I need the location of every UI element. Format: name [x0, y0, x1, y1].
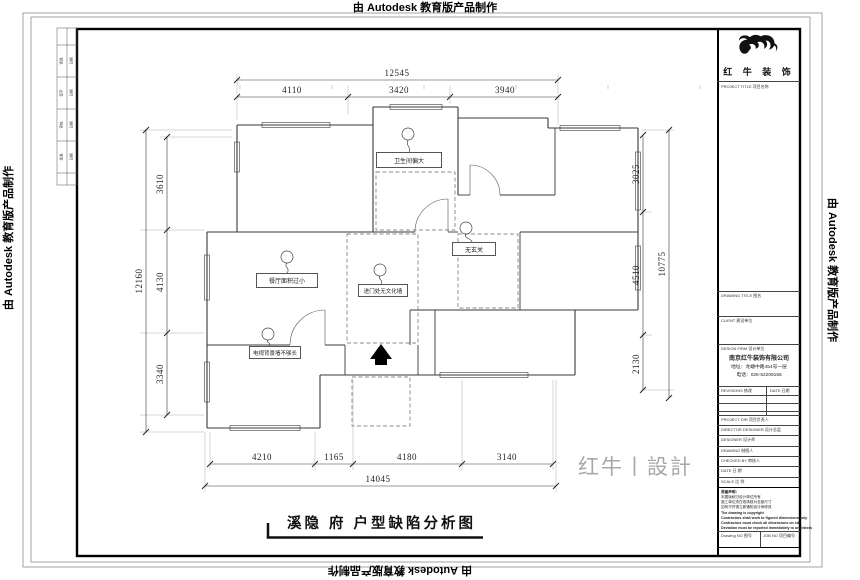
tb-row-project-dir: PROJECT DIR 项目负责人 — [721, 417, 769, 423]
fold-strip-label: 审核 — [60, 122, 65, 129]
company-phone: 电话：025-52209155 — [718, 371, 800, 378]
dim-top-seg: 3940 — [495, 85, 515, 95]
tb-section-project-title: PROJECT TITLE 项目名称 — [721, 84, 769, 90]
sheet-title: 溪隐 府 户型缺陷分析图 — [287, 512, 476, 533]
tb-job-no-label: JOB NO 项目编号 — [763, 533, 795, 539]
tb-note: Deviation must be reported immediately t… — [721, 526, 812, 530]
autodesk-watermark-left: 由 Autodesk 教育版产品制作 — [0, 166, 16, 310]
dim-bottom-seg: 4210 — [252, 452, 272, 462]
tb-note: 如有不符请立即通知设计师修改 — [721, 505, 771, 510]
tb-row-drawing: DRAWING 制图人 — [721, 448, 753, 454]
fold-strip-label: 日期 — [70, 90, 75, 97]
fold-strip-label: 日期 — [70, 58, 75, 65]
tb-divider — [718, 466, 800, 467]
entrance-arrow-icon — [370, 344, 392, 365]
fold-strip-label: 修改 — [60, 58, 65, 65]
defect-label-tv-wall: 电视背景墙不够长 — [249, 346, 301, 359]
tb-divider — [718, 81, 800, 82]
defect-label-entry: 进门处无文化墙 — [358, 284, 408, 297]
tb-divider — [718, 477, 800, 478]
company-name: 南京红牛装饰有限公司 — [718, 353, 800, 362]
dim-bottom-seg: 3140 — [497, 452, 517, 462]
dim-right-seg: 3025 — [631, 164, 641, 184]
tb-divider — [760, 531, 761, 547]
defect-label-dining: 餐厅面积过小 — [256, 273, 318, 288]
tb-row-date: DATE 日 期 — [721, 468, 742, 474]
tb-divider — [718, 456, 800, 457]
dimension-ticks — [143, 77, 672, 489]
fold-strip — [57, 28, 77, 185]
tb-divider — [718, 411, 800, 412]
dim-bottom-seg: 1165 — [324, 452, 344, 462]
title-block: 红 牛 装 饰 PROJECT TITLE 项目名称 DRAWING TITLE… — [718, 29, 800, 556]
dim-bottom-overall: 14045 — [366, 474, 391, 484]
dim-left-seg: 4130 — [155, 272, 165, 292]
autodesk-watermark-top: 由 Autodesk 教育版产品制作 — [353, 0, 497, 15]
dim-top-overall: 12545 — [385, 68, 410, 78]
dim-top-seg: 4110 — [282, 85, 302, 95]
frame-ticks — [240, 85, 700, 89]
dim-top-seg: 3420 — [389, 85, 409, 95]
tb-divider — [718, 415, 800, 416]
tb-divider — [718, 344, 800, 345]
dim-right-overall: 10775 — [657, 252, 667, 277]
fold-strip-label: 批准 — [60, 154, 65, 161]
tb-revisions-date-label: DATE 日期 — [770, 388, 789, 394]
brand-name: 红 牛 装 饰 — [718, 65, 800, 78]
dim-left-seg: 3340 — [155, 364, 165, 384]
tb-row-designer: DESIGNER 设计师 — [721, 437, 755, 443]
dimension-extension-lines — [140, 74, 674, 492]
company-address: 地址：龙蟠中路454号一层 — [718, 363, 800, 370]
tb-note: Contractors must check all dimensions on… — [721, 521, 801, 525]
fold-strip-label: 日期 — [70, 122, 75, 129]
tb-divider — [718, 435, 800, 436]
tb-section-client: CLIENT 建设单位 — [721, 318, 752, 324]
autodesk-watermark-bottom: 由 Autodesk 教育版产品制作 — [328, 563, 472, 579]
tb-note: Contractors shall work to figured dimens… — [721, 516, 807, 520]
tb-thick-divider — [718, 487, 800, 488]
autodesk-watermark-right: 由 Autodesk 教育版产品制作 — [825, 198, 841, 342]
fold-strip-label: 签字 — [60, 90, 65, 97]
dim-left-overall: 12160 — [134, 269, 144, 294]
dim-left-seg: 3610 — [155, 174, 165, 194]
tb-divider — [718, 316, 800, 317]
tb-divider — [718, 386, 800, 387]
tb-divider — [718, 446, 800, 447]
tb-section-design-firm: DESIGN FIRM 设计单位 — [721, 346, 764, 352]
tb-divider — [718, 425, 800, 426]
tb-row-checked: CHECKED BY 审核人 — [721, 458, 760, 464]
tb-section-drawing-title: DRAWING TITLE 图名 — [721, 293, 761, 299]
tb-drawing-no-label: Drawing NO 图号 — [721, 533, 752, 539]
tb-divider — [718, 403, 800, 404]
dim-right-seg: 2130 — [631, 354, 641, 374]
defect-label-bathroom: 卫生间偏大 — [376, 152, 442, 168]
dim-bottom-seg: 4180 — [397, 452, 417, 462]
tb-divider — [718, 531, 800, 532]
tb-divider — [718, 395, 800, 396]
fold-strip-label: 日期 — [70, 154, 75, 161]
tb-note: The drawing is copyright — [721, 511, 764, 515]
design-brand-watermark: 红牛丨設計 — [578, 451, 693, 481]
defect-label-foyer: 无玄关 — [452, 242, 496, 256]
tb-divider — [718, 291, 800, 292]
tb-row-director: DIRECTOR DESIGNER 设计总监 — [721, 427, 781, 433]
tb-thick-divider — [718, 547, 800, 548]
tb-revisions-label: REVISIONS 修改 — [721, 388, 752, 394]
bull-logo-icon — [734, 32, 784, 64]
dim-right-seg: 4510 — [631, 265, 641, 285]
cad-sheet: 由 Autodesk 教育版产品制作 由 Autodesk 教育版产品制作 由 … — [0, 0, 860, 580]
tb-row-scale: SCALE 比 例 — [721, 479, 744, 485]
